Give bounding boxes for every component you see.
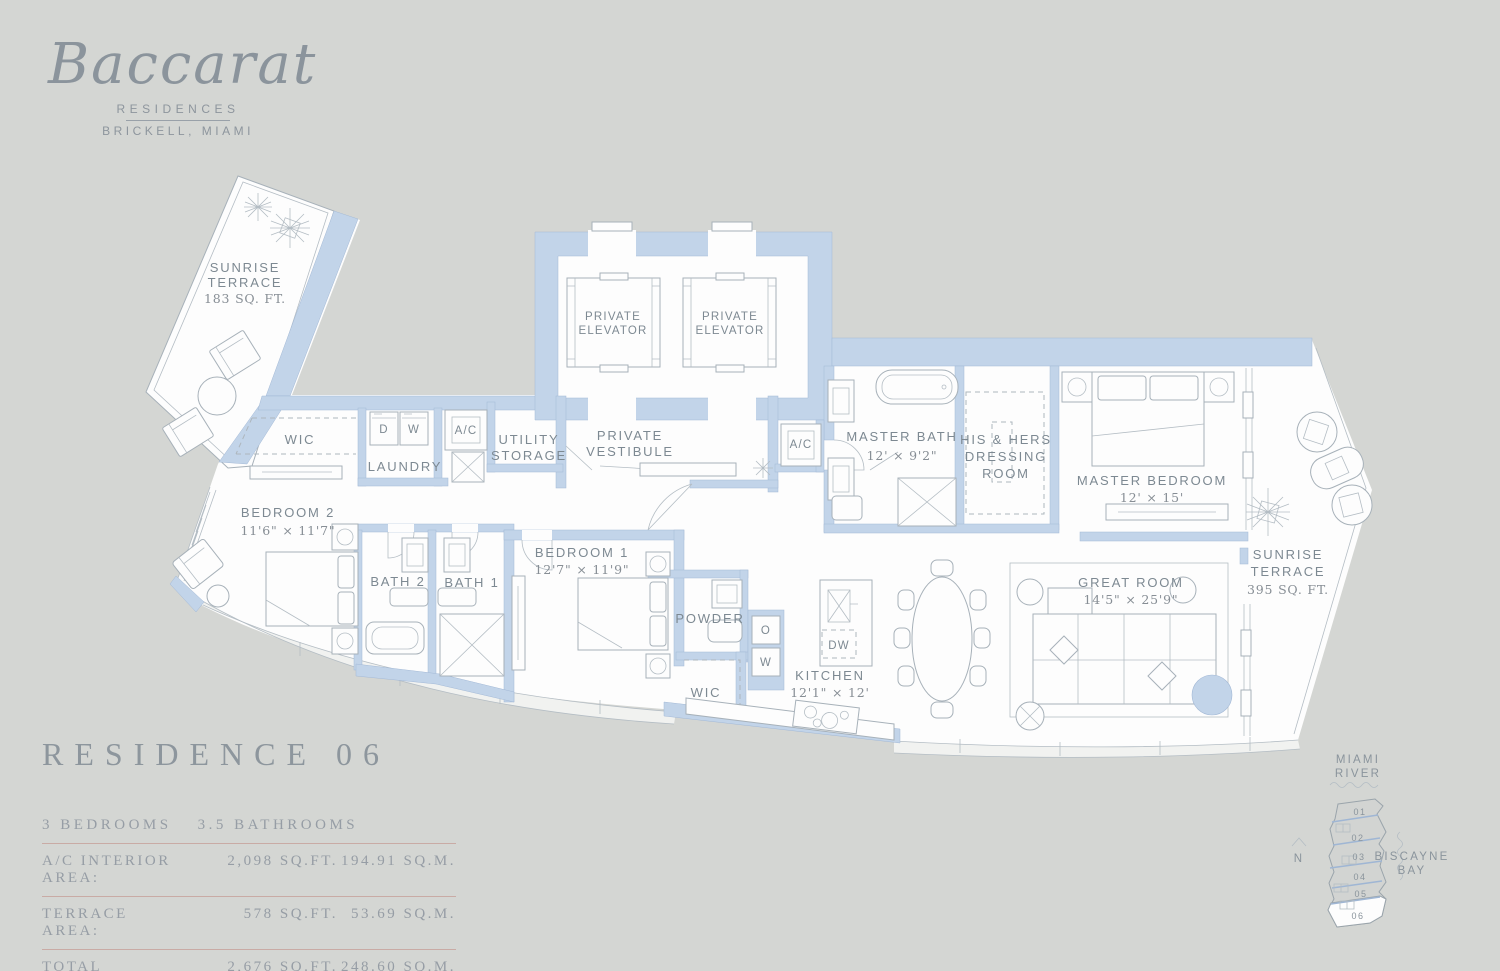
svg-text:ELEVATOR: ELEVATOR	[578, 325, 647, 337]
kitchen-label: KITCHEN	[795, 668, 865, 683]
keyplan-unit-05: 05	[1354, 889, 1367, 899]
ac2-label: A/C	[790, 439, 813, 451]
terrace-e-area: 395 SQ. FT.	[1247, 582, 1329, 597]
area-row: TERRACE AREA: 578 SQ.FT. 53.69 SQ.M.	[42, 896, 456, 949]
biscayne-bay-label: BISCAYNE	[1375, 851, 1450, 863]
svg-text:RIVER: RIVER	[1335, 768, 1381, 780]
svg-text:VESTIBULE: VESTIBULE	[586, 444, 674, 459]
bedroom1-label: BEDROOM 1	[535, 545, 629, 560]
bath1-label: BATH 1	[444, 575, 499, 590]
bed-bath-summary: 3 BEDROOMS 3.5 BATHROOMS	[42, 817, 456, 843]
floorplan-page: Baccarat RESIDENCES BRICKELL, MIAMI	[0, 0, 1500, 971]
residence-info-panel: RESIDENCE 06 3 BEDROOMS 3.5 BATHROOMS A/…	[42, 736, 456, 971]
svg-text:TERRACE: TERRACE	[1251, 564, 1326, 579]
svg-text:12'7" × 11'9": 12'7" × 11'9"	[535, 562, 630, 577]
area-row: TOTAL RESIDENCE: 2,676 SQ.FT. 248.60 SQ.…	[42, 949, 456, 971]
area-row: A/C INTERIOR AREA: 2,098 SQ.FT. 194.91 S…	[42, 843, 456, 896]
plant-icon	[270, 208, 310, 248]
wic2-label: WIC	[691, 685, 722, 700]
laundry-label: LAUNDRY	[368, 459, 443, 474]
svg-text:12' × 15': 12' × 15'	[1120, 490, 1184, 505]
keyplan: MIAMI RIVER N 01 02 03 04	[1292, 754, 1449, 927]
keyplan-unit-01: 01	[1353, 807, 1366, 817]
bedrooms-count: 3 BEDROOMS	[42, 817, 172, 834]
miami-river-label: MIAMI	[1336, 754, 1380, 766]
dressing-label: HIS & HERS	[960, 432, 1052, 447]
keyplan-unit-04: 04	[1353, 872, 1366, 882]
master-bedroom-label: MASTER BEDROOM	[1077, 473, 1227, 488]
svg-text:ROOM: ROOM	[982, 466, 1030, 481]
keyplan-unit-02: 02	[1351, 833, 1364, 843]
keyplan-unit-06: 06	[1351, 911, 1364, 921]
svg-text:12'1" × 12': 12'1" × 12'	[790, 685, 870, 700]
elevator1-label: PRIVATE	[585, 311, 641, 323]
terrace-e-label: SUNRISE	[1253, 547, 1323, 562]
washer-label: W	[408, 424, 420, 436]
dryer-label: D	[379, 424, 389, 436]
terrace-table-icon	[198, 377, 236, 415]
wine-label: W	[760, 657, 772, 669]
dishwasher-label: DW	[828, 640, 850, 652]
keyplan-unit-03: 03	[1352, 852, 1365, 862]
svg-text:ELEVATOR: ELEVATOR	[695, 325, 764, 337]
river-wave-icon	[1330, 783, 1378, 788]
svg-text:14'5" × 25'9": 14'5" × 25'9"	[1084, 592, 1179, 607]
wic1-label: WIC	[285, 432, 316, 447]
plant-icon	[244, 193, 272, 221]
svg-text:DRESSING: DRESSING	[965, 449, 1047, 464]
great-room-label: GREAT ROOM	[1078, 575, 1184, 590]
terrace-nw-label: SUNRISE	[210, 260, 280, 275]
master-bath-label: MASTER BATH	[846, 429, 957, 444]
north-label: N	[1294, 853, 1305, 865]
svg-text:12' × 9'2": 12' × 9'2"	[867, 448, 938, 463]
utility-label: UTILITY	[499, 432, 560, 447]
svg-text:BAY: BAY	[1398, 865, 1427, 877]
terrace-nw-area: 183 SQ. FT.	[204, 291, 286, 306]
north-arrow-icon	[1292, 838, 1306, 846]
svg-text:11'6" × 11'7": 11'6" × 11'7"	[241, 523, 336, 538]
bath2-label: BATH 2	[370, 574, 425, 589]
vestibule-label: PRIVATE	[597, 428, 663, 443]
bathrooms-count: 3.5 BATHROOMS	[198, 817, 359, 834]
oven-label: O	[761, 625, 771, 637]
bedroom2-label: BEDROOM 2	[241, 505, 335, 520]
svg-text:TERRACE: TERRACE	[208, 275, 283, 290]
residence-title: RESIDENCE 06	[42, 736, 456, 773]
ac1-label: A/C	[455, 425, 478, 437]
svg-text:STORAGE: STORAGE	[491, 448, 567, 463]
powder-label: POWDER	[675, 611, 744, 626]
elevator2-label: PRIVATE	[702, 311, 758, 323]
